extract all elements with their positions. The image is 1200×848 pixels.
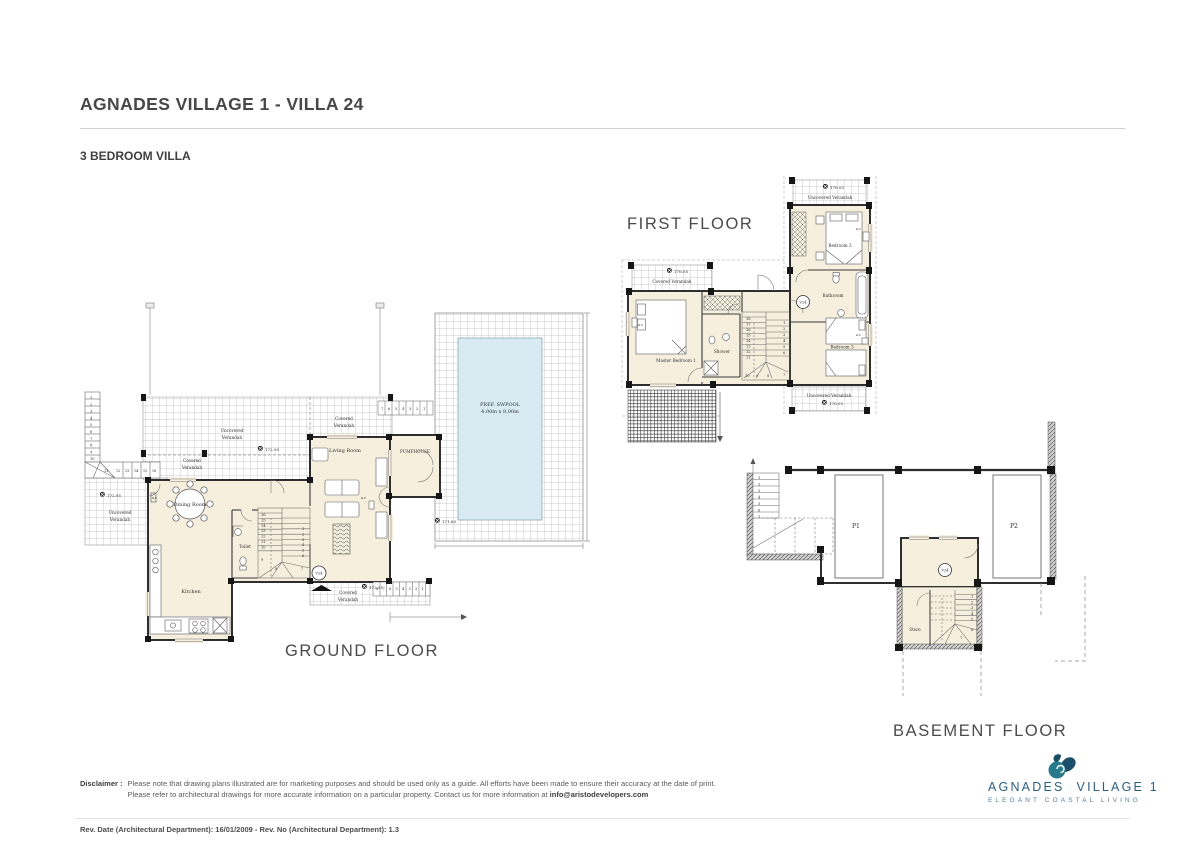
trellis (628, 390, 716, 442)
p1-label: P1 (852, 523, 860, 530)
revision-line: Rev. Date (Architectural Department): 16… (75, 818, 1130, 834)
verandah-living-label2: Verandah (333, 423, 354, 428)
wall-hatch-left (897, 587, 902, 649)
level-top: 172.95 (265, 447, 279, 452)
unit-badge: V24 (798, 301, 807, 305)
verandah-bottom-label1: Covered (339, 590, 357, 595)
shell-icon (988, 752, 1133, 782)
wardrobe-master (704, 296, 740, 310)
verandah-left-label2: Verandah (109, 517, 130, 522)
unit-badge: V24 (314, 572, 323, 576)
basement-floor-plan: P1 P2 Store V24 1234567 12345 6 7 (745, 418, 1095, 708)
bedroom3-label: Bedroom 3 (830, 345, 854, 350)
pumphouse-label: PUMPHOUSE (400, 449, 430, 454)
master-bedroom-label: Master Bedroom 1 (656, 358, 696, 363)
verandah-left-label1: Uncovered (108, 510, 131, 515)
bedroom2-label: Bedroom 2 (828, 243, 852, 248)
wardrobe-bed2 (792, 212, 806, 256)
bathroom-label: Bathroom (823, 293, 844, 298)
toilet-label: Toilet (239, 544, 251, 549)
level-top: 176.05 (830, 185, 844, 190)
swimming-pool (458, 338, 542, 520)
store-label: Store (909, 627, 921, 632)
contact-email: info@aristodevelopers.com (550, 790, 649, 799)
bedroom3-ac-label: a.c (856, 333, 861, 337)
wall-hatch-right (977, 587, 982, 649)
basement-floor-label: BASEMENT FLOOR (893, 722, 1067, 741)
uncovered-bottom-label: Uncovered Verandah (807, 393, 852, 398)
stair-left-numbers: 16151413121110 (261, 513, 266, 549)
first-floor-plan: 176.05 Covered Verandah 176.05 Uncovered… (620, 172, 885, 447)
level-covered: 176.05 (674, 269, 688, 274)
retaining-wall-left (747, 473, 753, 556)
verandah-covered (632, 265, 712, 291)
retaining-wall-bottomleft (747, 554, 823, 560)
ext-stair-11: 11 (104, 469, 109, 473)
stair-bottom-numbers: 1098 (745, 374, 770, 378)
first-floor-label: FIRST FLOOR (627, 215, 753, 234)
level-pool: 171.60 (442, 519, 456, 524)
verandah-top-label1: Uncovered (220, 428, 243, 433)
ground-floor-plan: 172.95 Uncovered Verandah Covered Verand… (75, 300, 590, 650)
verandah-dining-label1: Covered (183, 458, 201, 463)
p2-label: P2 (1010, 523, 1018, 530)
covered-verandah-label: Covered Verandah (652, 279, 692, 284)
brand-name: AGNADESVILLAGE 1 (988, 780, 1133, 794)
master-ac-label: a.c (638, 323, 643, 327)
shower-label: Shower (714, 349, 730, 354)
level-bottom: 176.05 (829, 401, 843, 406)
verandah-living-label1: Covered (335, 416, 353, 421)
floor-plan-sheet: AGNADES VILLAGE 1 - VILLA 24 3 BEDROOM V… (0, 0, 1200, 848)
disclaimer: Disclaimer : Please note that drawing pl… (80, 778, 980, 801)
dining-room-label: Dining Room (174, 502, 207, 508)
disclaimer-line2: Please refer to architectural drawings f… (128, 790, 550, 799)
page-title: AGNADES VILLAGE 1 - VILLA 24 (80, 94, 364, 115)
verandah-bottom-label2: Verandah (337, 597, 358, 602)
dining-ac-label: a.c (152, 496, 157, 500)
living-ac-label: a.c (361, 496, 366, 500)
brand-logo: AGNADESVILLAGE 1 ELEGANT COASTAL LIVING (988, 752, 1133, 804)
disclaimer-label: Disclaimer : (80, 778, 123, 801)
verandah-top (793, 180, 867, 206)
verandah-top-label2: Verandah (221, 435, 242, 440)
stair-left-numbers: 1817161514131211 (746, 317, 751, 360)
pumphouse-room (390, 435, 440, 497)
living-room-label: Living Room (329, 448, 361, 454)
page-subtitle: 3 BEDROOM VILLA (80, 149, 191, 163)
disclaimer-line1: Please note that drawing plans illustrat… (128, 779, 716, 788)
retaining-wall-right (1050, 474, 1056, 579)
level-left: 172.95 (107, 493, 121, 498)
pool-name-label: PREF. SWPOOL (480, 402, 521, 408)
pool-size-label: 4.00m x 8.00m (481, 409, 519, 415)
unit-badge: V24 (940, 569, 949, 573)
bedroom2-ac-label: a.c (856, 227, 861, 231)
wall-hatch-bottom (897, 644, 982, 649)
brand-tagline: ELEGANT COASTAL LIVING (988, 797, 1133, 804)
entry-room (901, 538, 978, 587)
uncovered-top-label: Uncovered Verandah (808, 195, 853, 200)
kitchen-label: Kitchen (181, 589, 201, 595)
verandah-dining-label2: Verandah (181, 465, 202, 470)
ground-floor-label: GROUND FLOOR (285, 642, 439, 661)
title-divider (80, 128, 1125, 129)
verandah-bottom (792, 387, 866, 411)
